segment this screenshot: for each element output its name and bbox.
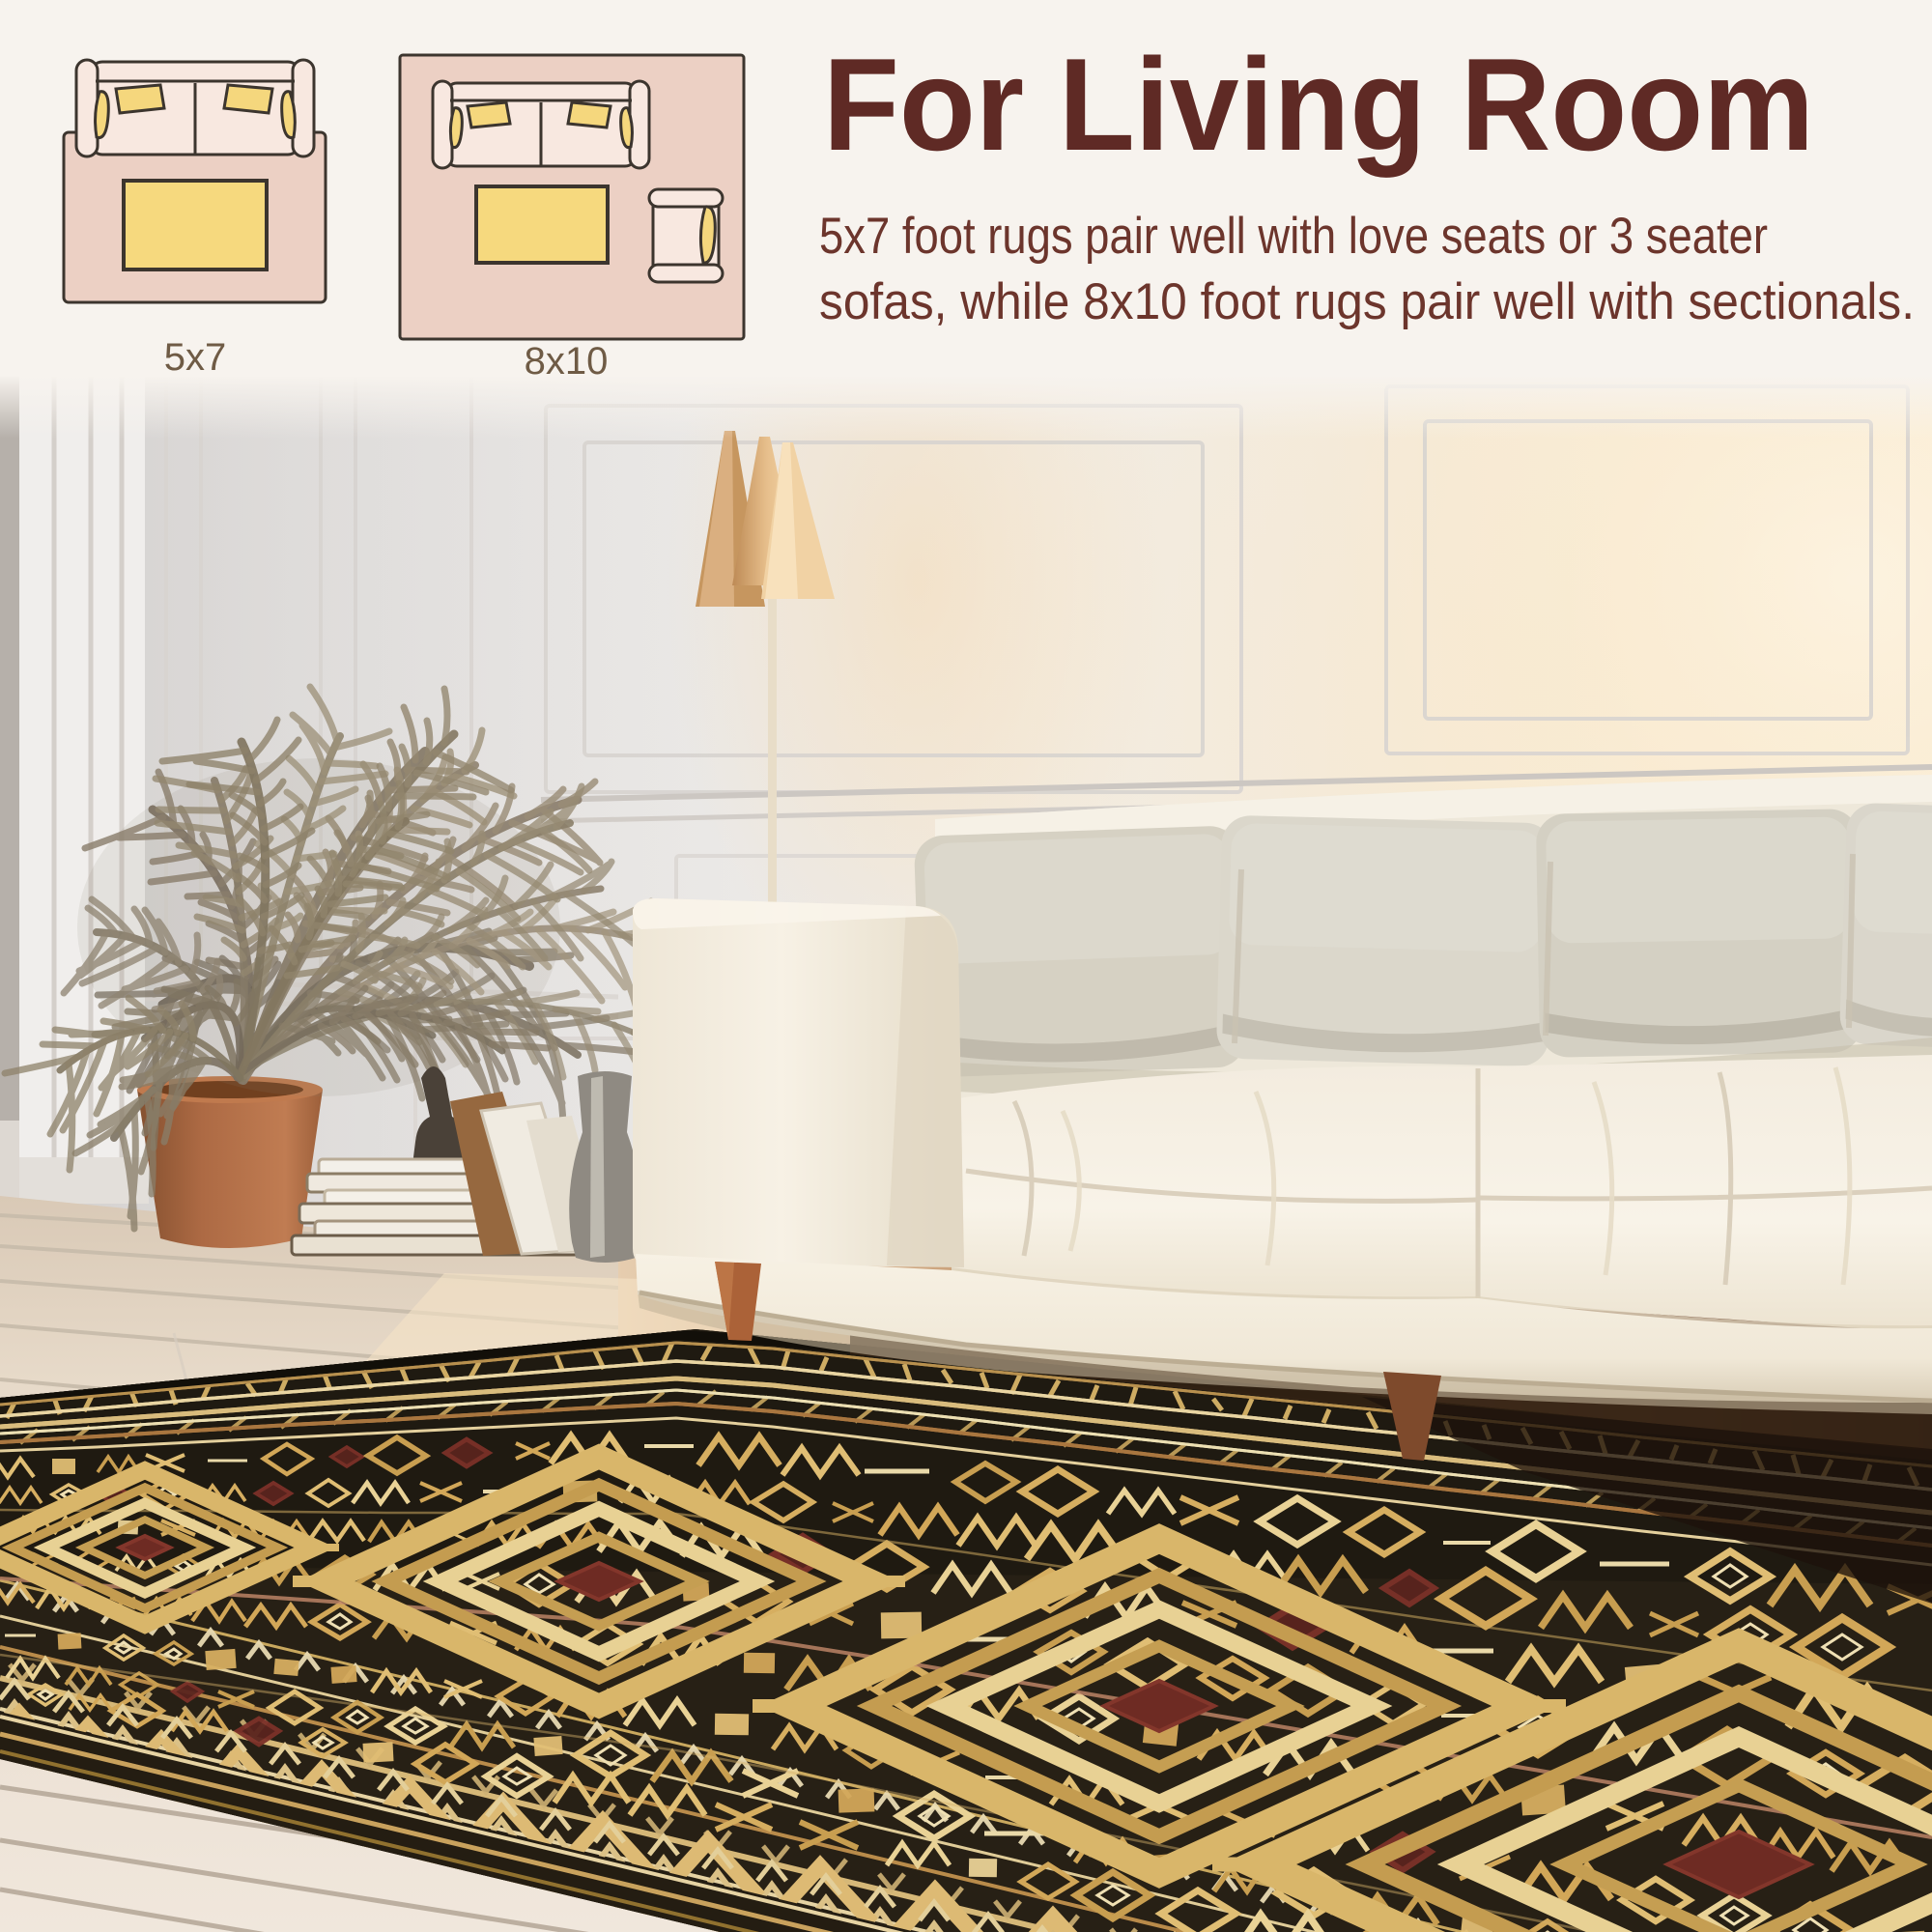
svg-text:For Living Room: For Living Room bbox=[823, 31, 1814, 178]
svg-text:8x10: 8x10 bbox=[525, 340, 609, 383]
svg-text:5x7: 5x7 bbox=[164, 336, 227, 379]
svg-text:5x7 foot rugs pair well with l: 5x7 foot rugs pair well with love seats … bbox=[819, 208, 1768, 265]
svg-text:sofas, while 8x10 foot rugs pa: sofas, while 8x10 foot rugs pair well wi… bbox=[819, 273, 1915, 330]
